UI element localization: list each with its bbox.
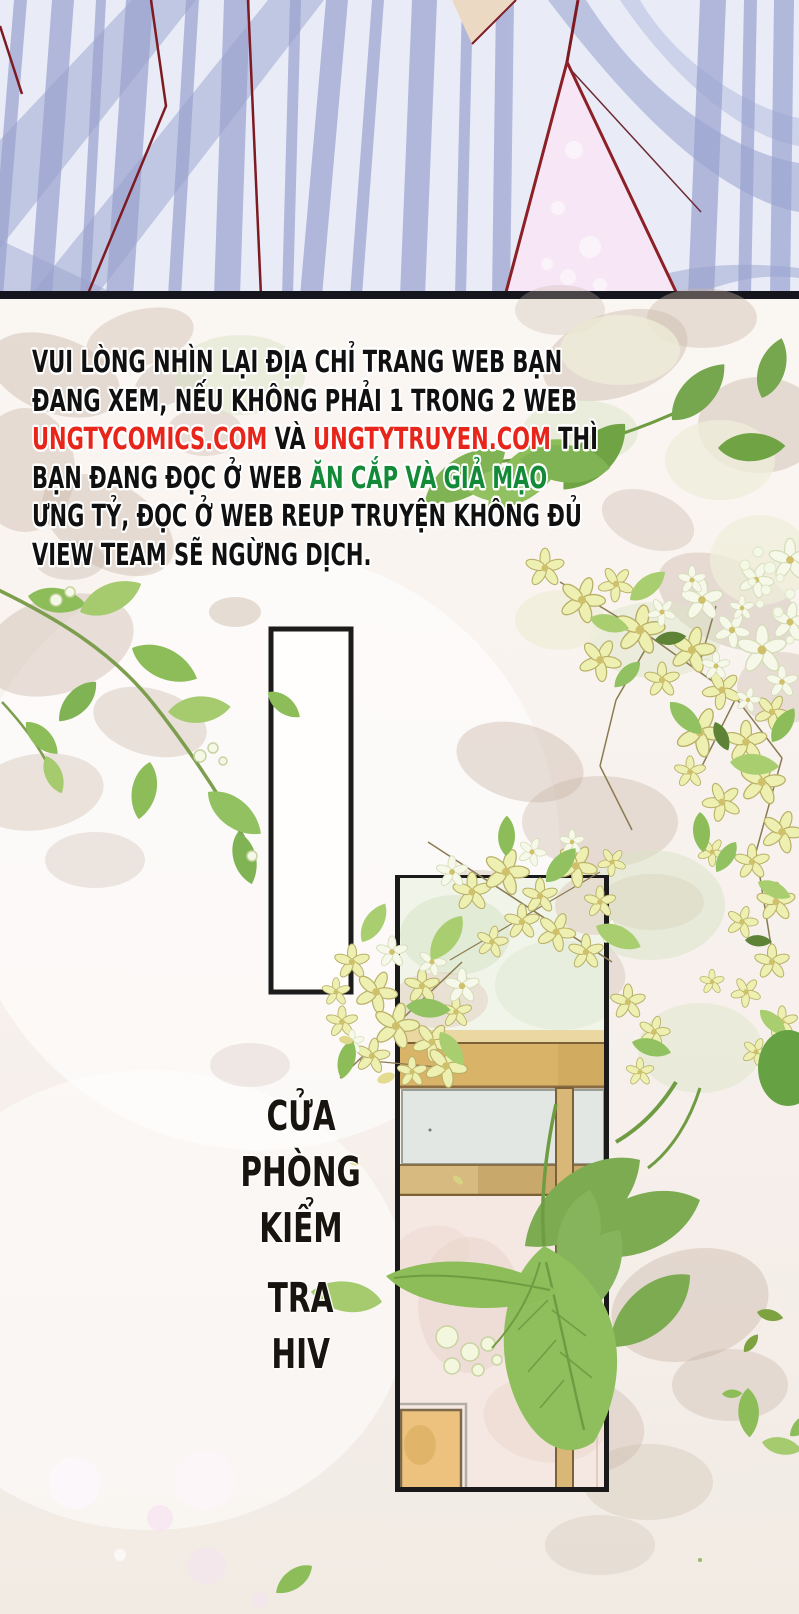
comic-page: VUI LÒNG NHÌN LẠI ĐỊA CHỈ TRANG WEB BẠN …	[0, 0, 799, 1614]
door-caption: CỬA PHÒNG KIỂM TRA HIV	[226, 1096, 376, 1390]
page-art	[0, 0, 799, 1614]
notice-line: VUI LÒNG NHÌN LẠI ĐỊA CHỈ TRANG WEB BẠN	[32, 344, 466, 383]
caption-word: KIỂM	[259, 1208, 342, 1249]
notice-line: VIEW TEAM SẼ NGỪNG DỊCH.	[32, 537, 466, 576]
notice-line: ƯNG TỶ, ĐỌC Ở WEB REUP TRUYỆN KHÔNG ĐỦ	[32, 498, 466, 537]
notice-line: UNGTYCOMICS.COM VÀ UNGTYTRUYEN.COM THÌ	[32, 421, 466, 460]
fabric-panel	[0, 0, 799, 296]
caption-word: TRA	[268, 1278, 334, 1319]
site-url-text: UNGTYTRUYEN.COM	[313, 422, 551, 457]
notice-text: VÀ	[267, 422, 313, 457]
notice-line: BẠN ĐANG ĐỌC Ở WEB ĂN CẮP VÀ GIẢ MẠO	[32, 460, 466, 499]
notice-text: ĐANG XEM, NẾU KHÔNG PHẢI 1 TRONG 2 WEB	[32, 384, 577, 419]
warning-text: ĂN CẮP VÀ GIẢ MẠO	[310, 461, 548, 496]
caption-word: CỬA	[266, 1096, 335, 1137]
caption-word: PHÒNG	[241, 1152, 361, 1193]
caption-word: HIV	[272, 1334, 331, 1375]
notice-text: BẠN ĐANG ĐỌC Ở WEB	[32, 461, 310, 496]
site-url-text: UNGTYCOMICS.COM	[32, 422, 267, 457]
notice-text: VIEW TEAM SẼ NGỪNG DỊCH.	[32, 538, 371, 573]
anti-piracy-notice: VUI LÒNG NHÌN LẠI ĐỊA CHỈ TRANG WEB BẠN …	[32, 344, 652, 575]
empty-panel-frame	[271, 629, 351, 992]
notice-text: VUI LÒNG NHÌN LẠI ĐỊA CHỈ TRANG WEB BẠN	[32, 345, 562, 380]
notice-line: ĐANG XEM, NẾU KHÔNG PHẢI 1 TRONG 2 WEB	[32, 383, 466, 422]
notice-text: THÌ	[551, 422, 598, 457]
notice-text: ƯNG TỶ, ĐỌC Ở WEB REUP TRUYỆN KHÔNG ĐỦ	[32, 499, 582, 534]
